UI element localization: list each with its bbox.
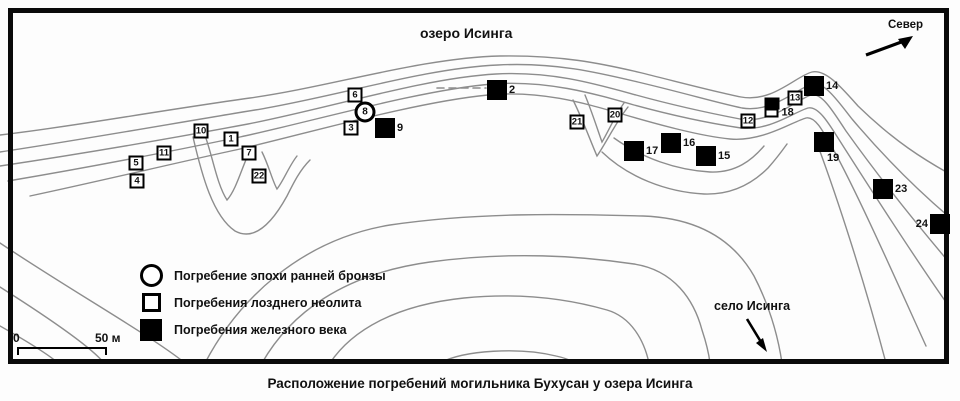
village-label: село Исинга	[714, 299, 790, 313]
scale-bar	[17, 347, 107, 355]
legend: Погребение эпохи ранней бронзы Погребени…	[140, 262, 386, 343]
scale-bar-start-label: 0	[13, 331, 20, 345]
legend-item-neolithic: Погребения лозднего неолита	[140, 289, 386, 316]
legend-item-iron: Погребения железного века	[140, 316, 386, 343]
bronze-burial-icon	[140, 264, 163, 287]
legend-item-bronze: Погребение эпохи ранней бронзы	[140, 262, 386, 289]
iron-burial-icon	[140, 319, 162, 341]
figure-caption: Расположение погребений могильника Бухус…	[0, 376, 960, 391]
scale-bar-end-label: 50 м	[95, 331, 121, 345]
neolithic-burial-icon	[142, 293, 161, 312]
legend-label-neolithic: Погребения лозднего неолита	[174, 296, 362, 310]
legend-label-iron: Погребения железного века	[174, 323, 347, 337]
legend-label-bronze: Погребение эпохи ранней бронзы	[174, 269, 386, 283]
burial-ground-map-figure: озеро Исинга Север село Исинга Погребени…	[0, 0, 960, 401]
north-label: Север	[888, 19, 923, 31]
lake-label: озеро Исинга	[420, 25, 512, 41]
